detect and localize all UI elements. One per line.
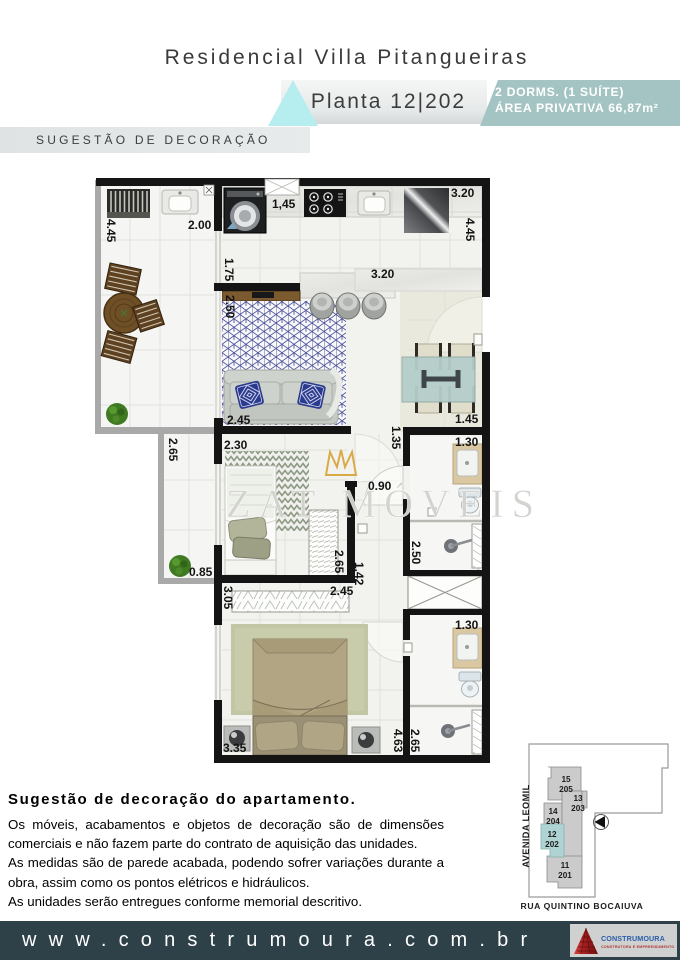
svg-text:2.50: 2.50 <box>409 541 423 565</box>
svg-text:3.20: 3.20 <box>451 186 475 200</box>
svg-text:1,45: 1,45 <box>272 197 296 211</box>
svg-text:0.85: 0.85 <box>189 565 213 579</box>
svg-text:3.05: 3.05 <box>221 586 235 610</box>
svg-text:2.45: 2.45 <box>227 413 251 427</box>
svg-text:205: 205 <box>559 785 573 794</box>
svg-text:201: 201 <box>558 871 572 880</box>
svg-text:ZAT MÓVEIS: ZAT MÓVEIS <box>226 481 542 526</box>
svg-text:2.65: 2.65 <box>332 550 346 574</box>
svg-text:4.45: 4.45 <box>104 219 118 243</box>
svg-text:2.45: 2.45 <box>330 584 354 598</box>
svg-text:1.45: 1.45 <box>455 412 479 426</box>
svg-text:203: 203 <box>571 804 585 813</box>
svg-text:2.30: 2.30 <box>224 438 248 452</box>
svg-text:3.35: 3.35 <box>223 741 247 755</box>
svg-text:14: 14 <box>548 807 558 816</box>
svg-text:13: 13 <box>573 794 583 803</box>
svg-text:2.50: 2.50 <box>223 295 237 319</box>
svg-text:12: 12 <box>547 830 557 839</box>
svg-text:4.63: 4.63 <box>391 729 405 753</box>
svg-text:1.35: 1.35 <box>389 426 403 450</box>
svg-text:2.65: 2.65 <box>408 729 422 753</box>
svg-text:1.30: 1.30 <box>455 618 479 632</box>
svg-text:2.00: 2.00 <box>188 218 212 232</box>
svg-text:204: 204 <box>546 817 560 826</box>
svg-text:4.45: 4.45 <box>463 218 477 242</box>
svg-text:1.42: 1.42 <box>352 562 366 586</box>
svg-text:1.30: 1.30 <box>455 435 479 449</box>
svg-text:3.20: 3.20 <box>371 267 395 281</box>
svg-text:11: 11 <box>561 861 570 870</box>
svg-text:2.65: 2.65 <box>166 438 180 462</box>
svg-text:202: 202 <box>545 840 559 849</box>
svg-text:RUA QUINTINO BOCAIUVA: RUA QUINTINO BOCAIUVA <box>521 901 644 911</box>
svg-text:AVENIDA LEOMIL: AVENIDA LEOMIL <box>521 784 531 867</box>
svg-text:15: 15 <box>561 775 571 784</box>
svg-text:1.75: 1.75 <box>222 258 236 282</box>
